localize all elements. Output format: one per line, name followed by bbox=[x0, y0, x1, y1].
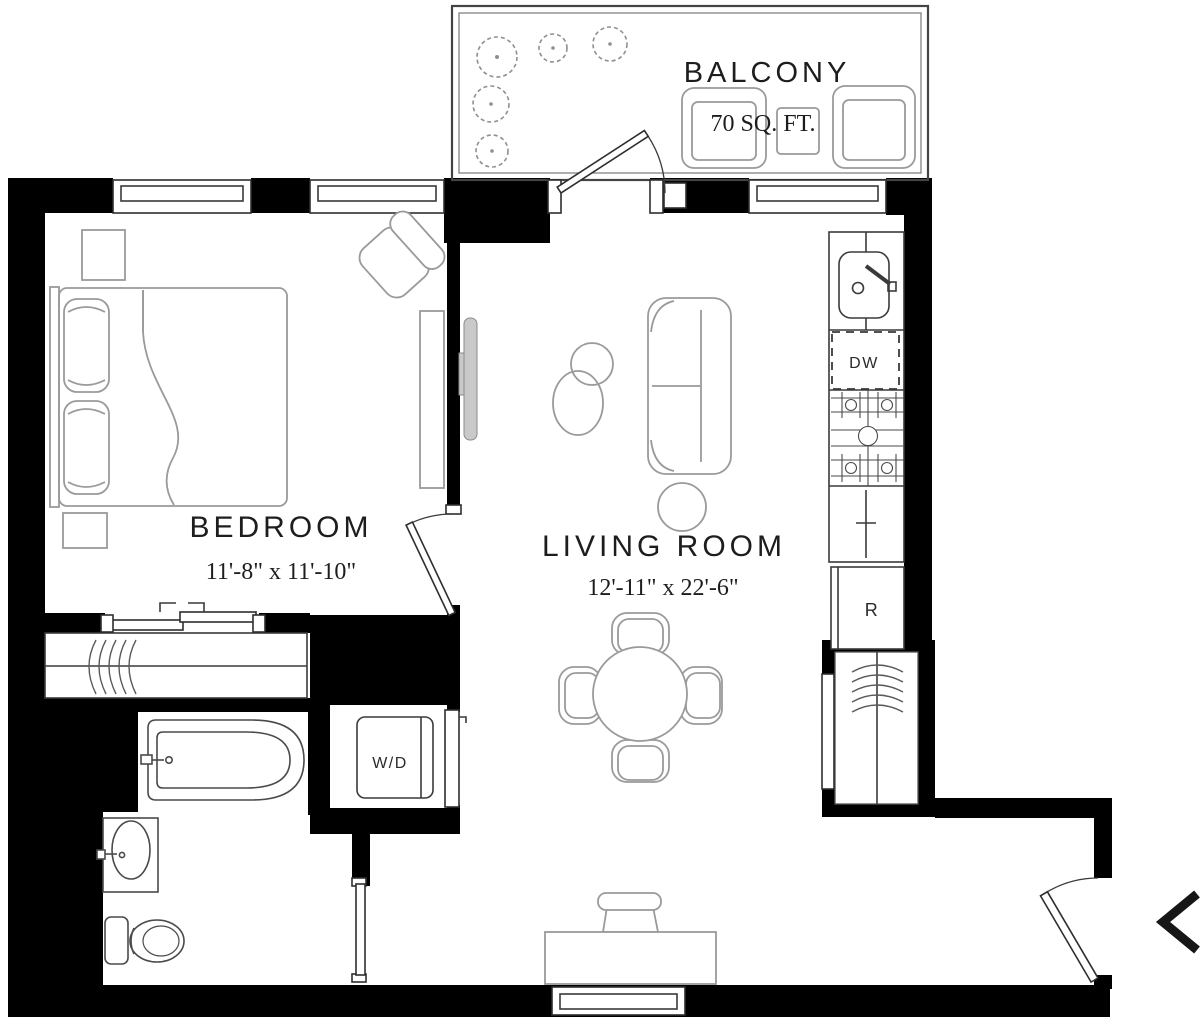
laundry-door bbox=[445, 710, 459, 807]
balcony-chair bbox=[833, 86, 915, 168]
dining-chair bbox=[612, 740, 669, 782]
window bbox=[310, 180, 444, 213]
background bbox=[0, 0, 1200, 1027]
wall-niche bbox=[664, 183, 686, 208]
side-table bbox=[658, 483, 706, 531]
kitchen: DW R bbox=[829, 232, 904, 649]
living-room-label: LIVING ROOM bbox=[542, 530, 786, 563]
living-room-dimensions: 12'-11" x 22'-6" bbox=[587, 575, 738, 601]
dishwasher-label: DW bbox=[849, 355, 879, 372]
bathroom-vanity bbox=[97, 818, 158, 892]
coat-closet bbox=[822, 652, 918, 804]
coat-closet-door bbox=[822, 674, 834, 789]
refrigerator-label: R bbox=[865, 600, 880, 620]
window bbox=[552, 987, 685, 1015]
window bbox=[113, 180, 251, 213]
balcony-label: BALCONY bbox=[684, 57, 851, 89]
toilet bbox=[105, 917, 184, 964]
balcony-area: 70 SQ. FT. bbox=[711, 111, 816, 137]
desk-chair-back bbox=[598, 893, 661, 910]
washer-dryer: W/D bbox=[357, 717, 433, 798]
laundry-closet: W/D bbox=[330, 705, 466, 808]
sofa bbox=[648, 298, 731, 474]
bedroom-label: BEDROOM bbox=[189, 511, 372, 544]
washer-dryer-label: W/D bbox=[372, 755, 408, 772]
bedroom-dimensions: 11'-8" x 11'-10" bbox=[206, 559, 356, 585]
refrigerator: R bbox=[831, 567, 904, 649]
dining-table bbox=[593, 647, 687, 741]
window bbox=[749, 180, 886, 213]
floorplan-image: BALCONY 70 SQ. FT. bbox=[0, 0, 1200, 1027]
